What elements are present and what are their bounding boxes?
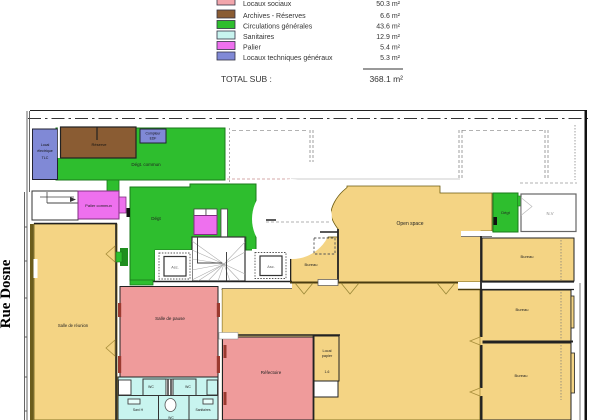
svg-text:Local: Local bbox=[322, 349, 331, 353]
svg-text:Locaux sociaux: Locaux sociaux bbox=[243, 1, 292, 8]
svg-text:Asc.: Asc. bbox=[267, 265, 274, 269]
svg-text:1-6: 1-6 bbox=[325, 370, 330, 374]
svg-text:50.3 m²: 50.3 m² bbox=[376, 1, 400, 8]
svg-text:Dégt. commun: Dégt. commun bbox=[131, 162, 161, 167]
svg-text:électrique: électrique bbox=[37, 149, 53, 153]
svg-text:Bureau: Bureau bbox=[521, 254, 534, 259]
svg-text:EDF: EDF bbox=[150, 137, 157, 141]
svg-text:Compteur: Compteur bbox=[146, 132, 162, 136]
svg-text:Palier: Palier bbox=[243, 45, 262, 52]
svg-text:N.V: N.V bbox=[547, 211, 554, 216]
svg-text:368.1 m²: 368.1 m² bbox=[369, 74, 403, 84]
svg-text:Local: Local bbox=[41, 143, 50, 147]
svg-text:Asc.: Asc. bbox=[171, 266, 178, 270]
svg-text:Palier commun: Palier commun bbox=[85, 203, 112, 208]
svg-text:5.4 m²: 5.4 m² bbox=[380, 45, 401, 52]
svg-text:Salle de pause: Salle de pause bbox=[155, 316, 185, 321]
svg-text:Sani H: Sani H bbox=[133, 408, 144, 412]
svg-text:Rue Dosne: Rue Dosne bbox=[0, 259, 14, 328]
svg-text:WC: WC bbox=[148, 385, 154, 389]
svg-text:Sanitaires: Sanitaires bbox=[243, 34, 275, 41]
svg-text:papier: papier bbox=[322, 354, 333, 358]
svg-text:Bureau: Bureau bbox=[305, 262, 318, 267]
svg-text:Archives - Réserves: Archives - Réserves bbox=[243, 13, 306, 20]
svg-text:Locaux techniques généraux: Locaux techniques généraux bbox=[243, 55, 333, 62]
svg-text:Sanitaires: Sanitaires bbox=[195, 408, 210, 412]
svg-text:WC: WC bbox=[185, 385, 191, 389]
svg-text:43.6 m²: 43.6 m² bbox=[376, 24, 400, 31]
svg-text:Dégt: Dégt bbox=[501, 210, 510, 215]
svg-text:Réfectoire: Réfectoire bbox=[261, 370, 282, 375]
svg-text:Circulations générales: Circulations générales bbox=[243, 24, 313, 31]
svg-text:TLC: TLC bbox=[42, 156, 49, 160]
svg-text:Bureau: Bureau bbox=[515, 373, 528, 378]
svg-text:Réserve: Réserve bbox=[92, 142, 108, 147]
svg-text:WC: WC bbox=[168, 416, 174, 420]
svg-text:Dégt: Dégt bbox=[151, 216, 161, 221]
svg-text:TOTAL SUB :: TOTAL SUB : bbox=[221, 74, 272, 84]
svg-text:Bureau: Bureau bbox=[516, 307, 529, 312]
svg-text:Open space: Open space bbox=[397, 221, 424, 227]
svg-text:6.6 m²: 6.6 m² bbox=[380, 13, 401, 20]
svg-text:5.3 m²: 5.3 m² bbox=[380, 55, 401, 62]
svg-text:Salle de réunion: Salle de réunion bbox=[58, 323, 89, 328]
svg-text:12.9 m²: 12.9 m² bbox=[376, 34, 400, 41]
